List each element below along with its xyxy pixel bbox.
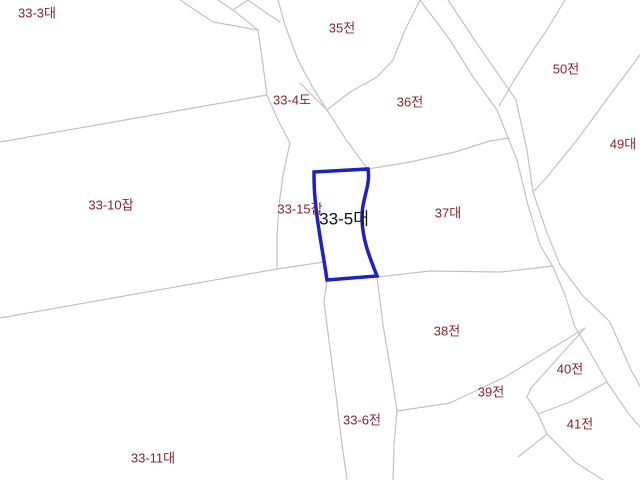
boundary-b36-37 xyxy=(368,138,509,169)
parcel-label-33-6: 33-6전 xyxy=(343,410,381,429)
parcel-label-33-5: 33-5대 xyxy=(319,205,369,230)
cadastral-map-viewport: 33-3대35전33-4도36전50전49대33-10잡33-15잡33-5대3… xyxy=(0,0,640,480)
boundary-road1-left-upper xyxy=(258,30,290,143)
boundary-west-long-upper xyxy=(0,95,267,142)
parcel-label-50: 50전 xyxy=(553,59,579,78)
boundary-road1-left-lower xyxy=(324,280,347,480)
boundary-road2-right xyxy=(448,0,640,386)
boundary-top-notch-v xyxy=(218,0,248,10)
boundary-road1-right-lower xyxy=(377,277,397,480)
boundary-west-long-lower xyxy=(0,262,324,318)
boundary-b37-38 xyxy=(377,266,553,277)
parcel-label-37: 37대 xyxy=(435,203,461,222)
parcel-boundaries-layer xyxy=(0,0,640,480)
boundary-b50-49 xyxy=(534,55,640,191)
parcel-label-38: 38전 xyxy=(434,321,460,340)
boundary-top-notch-link xyxy=(233,10,258,30)
parcel-label-36: 36전 xyxy=(397,92,423,111)
parcel-label-33-4: 33-4도 xyxy=(273,90,311,109)
boundary-top-merge-link xyxy=(248,0,280,22)
parcel-label-33-3: 33-3대 xyxy=(18,3,56,22)
boundary-road1-right-mid xyxy=(327,110,368,169)
parcel-label-49: 49대 xyxy=(610,134,636,153)
parcel-label-35: 35전 xyxy=(329,18,355,37)
parcel-label-33-11: 33-11대 xyxy=(131,448,175,467)
boundary-topleft-branch xyxy=(180,0,258,30)
boundary-b41-southwest xyxy=(518,434,547,457)
parcel-label-33-10: 33-10잡 xyxy=(88,195,133,214)
parcel-label-33-15: 33-15잡 xyxy=(277,199,322,218)
boundary-b40-41 xyxy=(538,382,607,414)
boundary-b35-50 xyxy=(499,0,565,106)
parcel-label-39: 39전 xyxy=(478,382,504,401)
parcel-label-40: 40전 xyxy=(557,359,583,378)
parcel-label-41: 41전 xyxy=(567,414,593,433)
